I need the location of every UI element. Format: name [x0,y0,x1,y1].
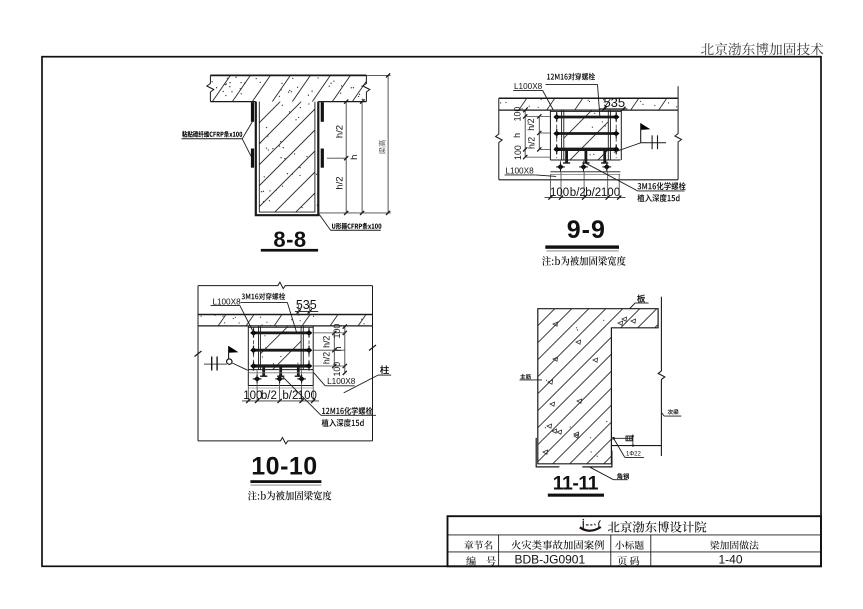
svg-text:100: 100 [332,362,342,377]
svg-text:b/2: b/2 [261,390,277,402]
svg-text:100: 100 [298,390,317,402]
svg-text:h: h [333,346,343,351]
svg-text:b/2: b/2 [570,187,586,199]
svg-text:100: 100 [243,390,262,402]
svg-text:100: 100 [550,187,569,199]
svg-text:100: 100 [513,145,523,160]
svg-text:h/2: h/2 [526,118,536,130]
svg-text:1-40: 1-40 [718,553,742,567]
svg-text:535: 535 [603,95,625,110]
svg-text:1Φ22: 1Φ22 [626,451,641,457]
svg-text:h/2: h/2 [334,176,345,189]
svg-text:100: 100 [601,187,620,199]
svg-text:h: h [349,155,360,160]
svg-text:10-10: 10-10 [251,453,317,481]
svg-text:9-9: 9-9 [567,216,606,244]
svg-text:b/2: b/2 [585,187,601,199]
svg-text:h/2: h/2 [526,137,536,149]
svg-text:b/2: b/2 [282,390,298,402]
svg-text:h: h [512,133,522,138]
svg-text:100: 100 [513,107,523,122]
svg-text:h/2: h/2 [322,336,332,348]
svg-text:L100X8: L100X8 [505,166,534,175]
svg-text:h/2: h/2 [322,352,332,364]
svg-text:BDB-JG0901: BDB-JG0901 [514,553,585,567]
svg-text:100: 100 [332,324,342,339]
svg-text:8-8: 8-8 [273,227,306,252]
svg-text:h/2: h/2 [334,125,345,138]
svg-text:L100X8: L100X8 [327,377,356,386]
svg-text:11-11: 11-11 [553,473,599,495]
svg-text:L100X8: L100X8 [514,82,543,91]
svg-text:L100X8: L100X8 [212,297,241,306]
